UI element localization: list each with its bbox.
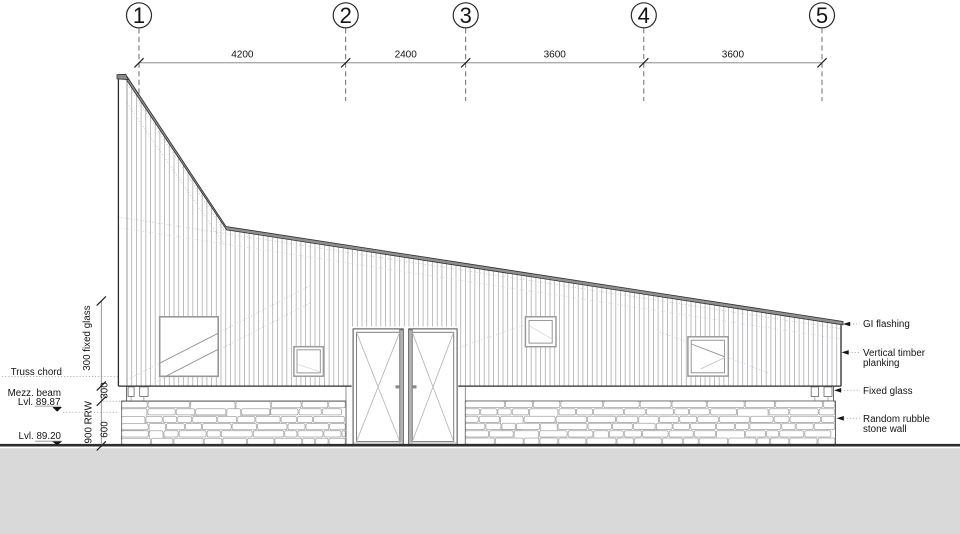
svg-text:1: 1 — [133, 3, 145, 28]
svg-text:Lvl. 89.20: Lvl. 89.20 — [19, 431, 62, 442]
svg-text:stone wall: stone wall — [863, 424, 907, 435]
svg-text:planking: planking — [863, 358, 900, 369]
svg-text:GI flashing: GI flashing — [863, 319, 910, 330]
svg-text:5: 5 — [816, 3, 828, 28]
svg-text:Fixed glass: Fixed glass — [863, 386, 913, 397]
svg-text:300: 300 — [100, 382, 111, 399]
svg-text:2400: 2400 — [395, 50, 418, 61]
svg-text:2: 2 — [340, 3, 352, 28]
svg-text:Truss chord: Truss chord — [11, 367, 62, 378]
svg-text:3600: 3600 — [722, 50, 745, 61]
svg-text:300 fixed glass: 300 fixed glass — [82, 305, 93, 370]
svg-text:4: 4 — [638, 3, 650, 28]
svg-text:600: 600 — [100, 421, 111, 438]
svg-text:4200: 4200 — [231, 50, 254, 61]
svg-text:900 RRW: 900 RRW — [84, 400, 95, 443]
svg-text:3: 3 — [460, 3, 472, 28]
svg-text:3600: 3600 — [544, 50, 567, 61]
